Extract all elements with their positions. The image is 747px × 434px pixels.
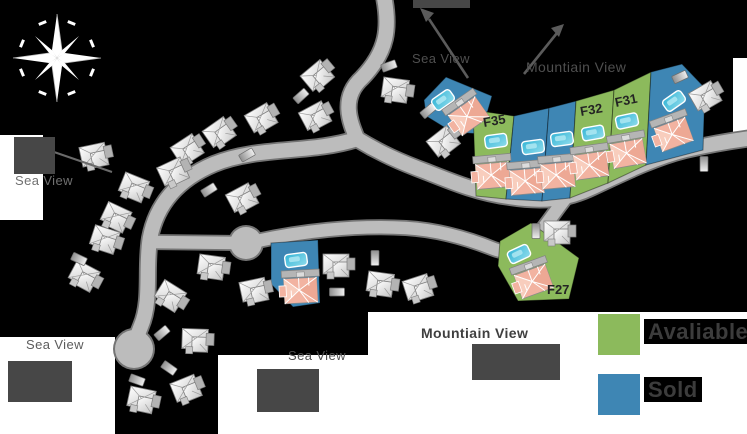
car: [330, 288, 345, 296]
sea-view-label-left: Sea View: [15, 173, 73, 188]
house: [116, 172, 155, 207]
car: [700, 157, 708, 172]
car: [532, 224, 540, 239]
house: [300, 56, 341, 96]
pool: [521, 139, 545, 155]
pool: [550, 131, 574, 147]
legend-available-label: Avaliable: [644, 319, 747, 344]
house: [202, 113, 243, 152]
pool: [581, 125, 605, 142]
legend-sold-label: Sold: [644, 377, 702, 402]
house: [323, 254, 355, 279]
house: [170, 372, 209, 407]
sea-view-label-top: Sea View: [412, 51, 470, 66]
mountain-view-label-bottom: Mountiain View: [421, 325, 528, 341]
house: [152, 279, 192, 317]
car: [154, 325, 171, 341]
pool: [284, 252, 308, 268]
house: [182, 328, 215, 354]
legend-available-swatch: [598, 314, 640, 355]
sea-view-arrow-icon: [429, 19, 468, 78]
sea-view-label-bottom-middle: Sea View: [288, 348, 346, 363]
house: [196, 254, 231, 283]
car: [201, 183, 218, 198]
car: [293, 88, 310, 104]
site-map: F35F32F31F27: [0, 0, 747, 434]
house: [126, 386, 162, 417]
pool: [484, 133, 508, 149]
car: [161, 360, 178, 375]
house: [239, 276, 275, 307]
house: [225, 180, 265, 217]
mountain-view-label-top: Mountiain View: [526, 59, 626, 75]
compass-rose-icon: [13, 14, 101, 102]
house: [544, 221, 576, 246]
car: [71, 252, 88, 266]
house: [365, 271, 400, 300]
house: [380, 77, 415, 106]
car: [129, 374, 146, 387]
house: [298, 98, 338, 135]
house: [66, 260, 106, 297]
sea-view-label-bottom-left: Sea View: [26, 337, 84, 352]
house: [402, 272, 440, 306]
plot-label-F27: F27: [547, 282, 569, 297]
site-plan: F35F32F31F27: [0, 0, 747, 434]
villa-house: [278, 269, 321, 304]
house: [244, 100, 284, 138]
legend-sold-swatch: [598, 374, 640, 415]
car: [371, 251, 379, 266]
